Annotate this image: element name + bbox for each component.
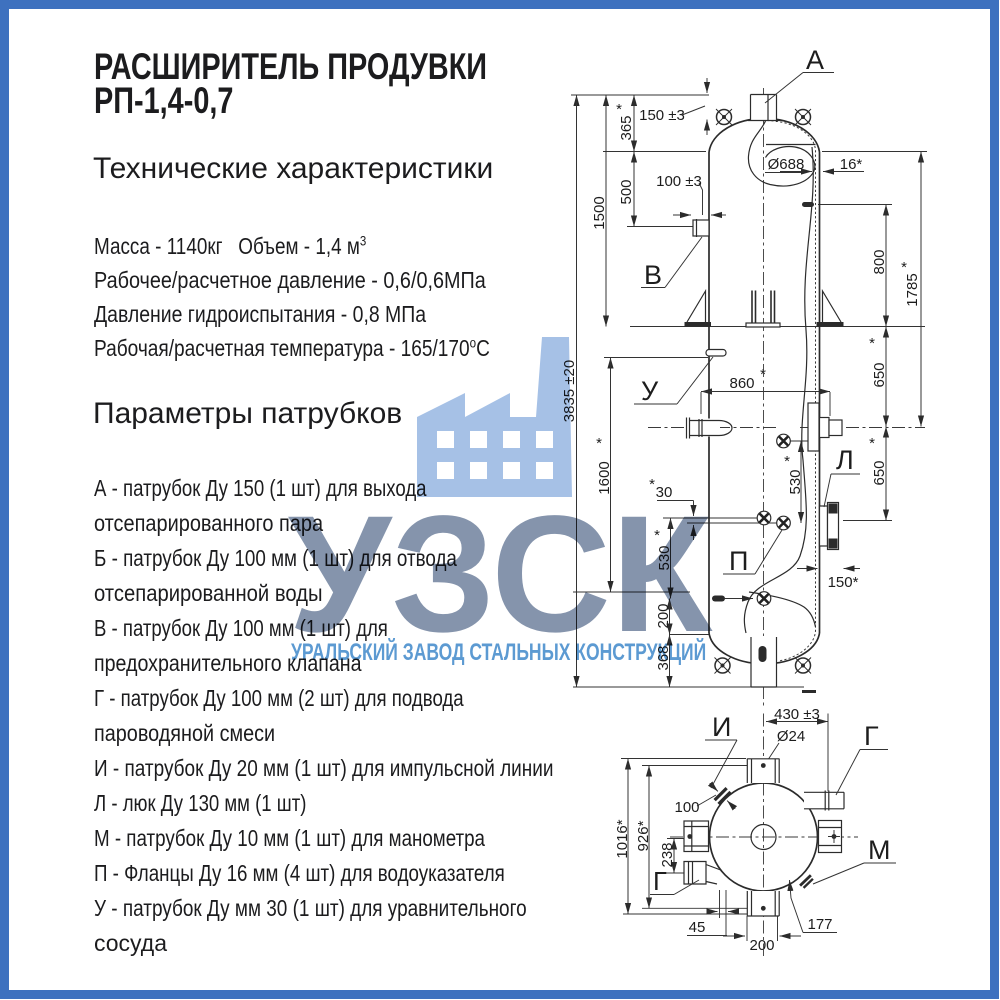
svg-text:А: А [806, 45, 824, 75]
svg-text:150 ±3: 150 ±3 [639, 107, 685, 124]
svg-text:Л: Л [836, 445, 854, 475]
svg-text:Г: Г [653, 866, 667, 896]
svg-text:238: 238 [659, 842, 676, 867]
svg-text:150*: 150* [828, 574, 859, 591]
svg-text:860: 860 [729, 375, 754, 392]
svg-text:926*: 926* [635, 820, 652, 851]
svg-text:200: 200 [749, 937, 774, 954]
svg-text:*: * [869, 435, 875, 452]
svg-text:650: 650 [871, 460, 888, 485]
svg-text:В: В [644, 260, 662, 290]
svg-text:М: М [868, 835, 891, 865]
svg-text:Г: Г [864, 721, 879, 751]
svg-text:И: И [712, 712, 731, 742]
svg-text:*: * [784, 453, 790, 470]
svg-text:П: П [729, 546, 748, 576]
svg-text:45: 45 [689, 919, 706, 936]
svg-text:1785: 1785 [904, 273, 921, 306]
svg-text:800: 800 [871, 249, 888, 274]
svg-text:Ø24: Ø24 [777, 728, 805, 745]
svg-text:*: * [869, 335, 875, 352]
svg-text:500: 500 [618, 179, 635, 204]
svg-text:16*: 16* [840, 156, 863, 173]
svg-text:177: 177 [807, 916, 832, 933]
svg-text:430 ±3: 430 ±3 [774, 706, 820, 723]
svg-text:100: 100 [674, 799, 699, 816]
svg-text:530: 530 [787, 469, 804, 494]
svg-text:1500: 1500 [591, 196, 608, 229]
svg-text:*: * [616, 101, 622, 118]
svg-text:У: У [641, 376, 659, 406]
svg-text:100 ±3: 100 ±3 [656, 173, 702, 190]
svg-text:Ø688: Ø688 [768, 156, 805, 173]
svg-text:*: * [596, 435, 602, 452]
svg-text:*: * [901, 259, 907, 276]
svg-text:650: 650 [871, 362, 888, 387]
svg-text:365: 365 [618, 115, 635, 140]
svg-text:1016*: 1016* [614, 819, 631, 858]
